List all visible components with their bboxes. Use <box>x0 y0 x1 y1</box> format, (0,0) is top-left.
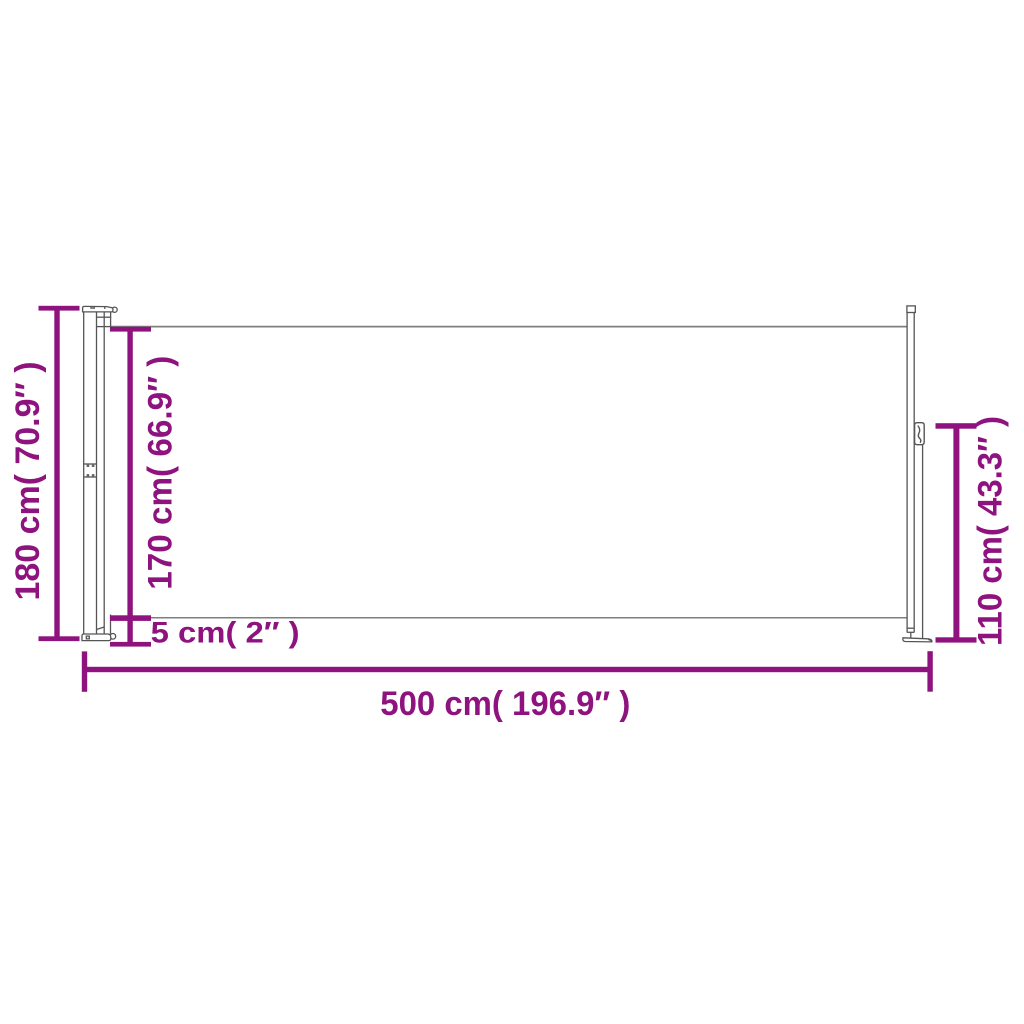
svg-text:180 cm( 70.9″ ): 180 cm( 70.9″ ) <box>9 362 47 601</box>
svg-text:500 cm( 196.9″ ): 500 cm( 196.9″ ) <box>380 685 630 723</box>
svg-text:5 cm( 2″ ): 5 cm( 2″ ) <box>151 616 300 649</box>
svg-text:170 cm( 66.9″ ): 170 cm( 66.9″ ) <box>142 356 180 590</box>
svg-text:110 cm( 43.3″ ): 110 cm( 43.3″ ) <box>972 416 1010 646</box>
